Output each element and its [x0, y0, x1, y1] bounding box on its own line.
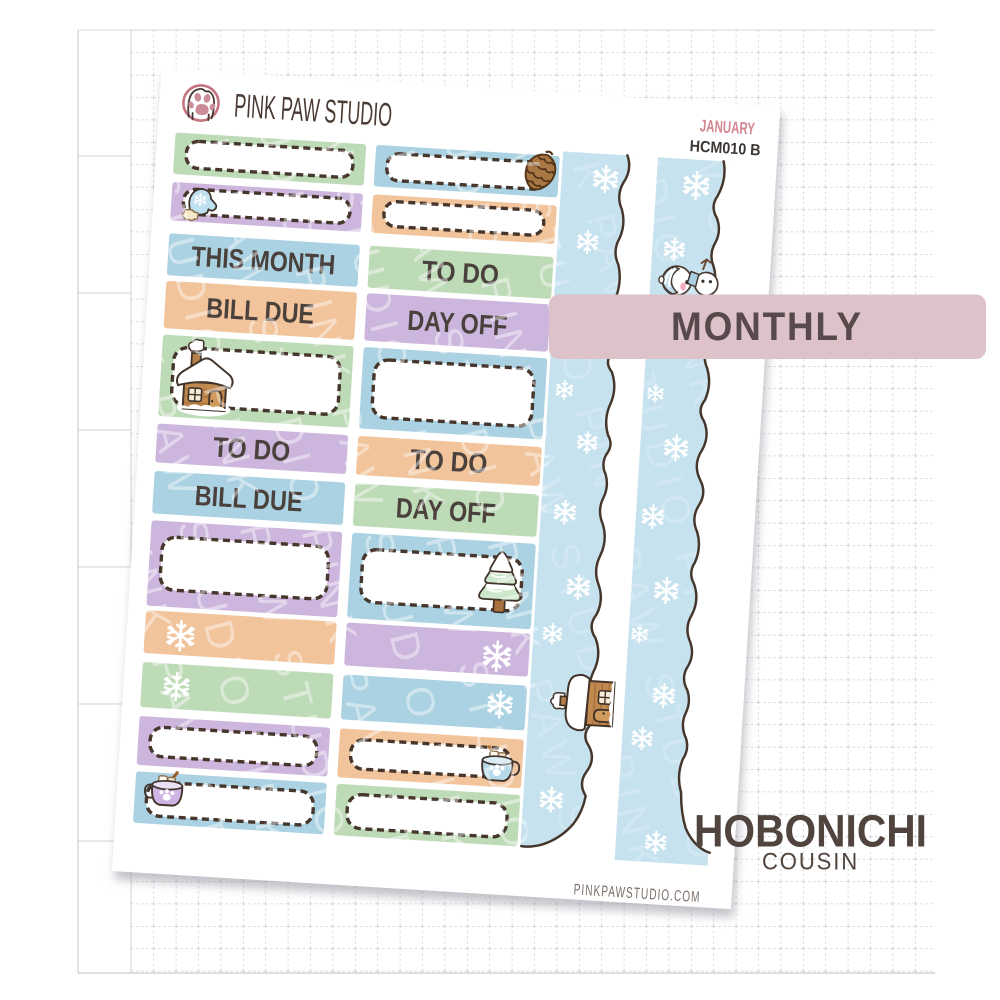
- svg-text:JANUARY: JANUARY: [699, 116, 756, 138]
- svg-text:COUSIN: COUSIN: [762, 849, 859, 876]
- svg-text:MONTHLY: MONTHLY: [671, 305, 863, 349]
